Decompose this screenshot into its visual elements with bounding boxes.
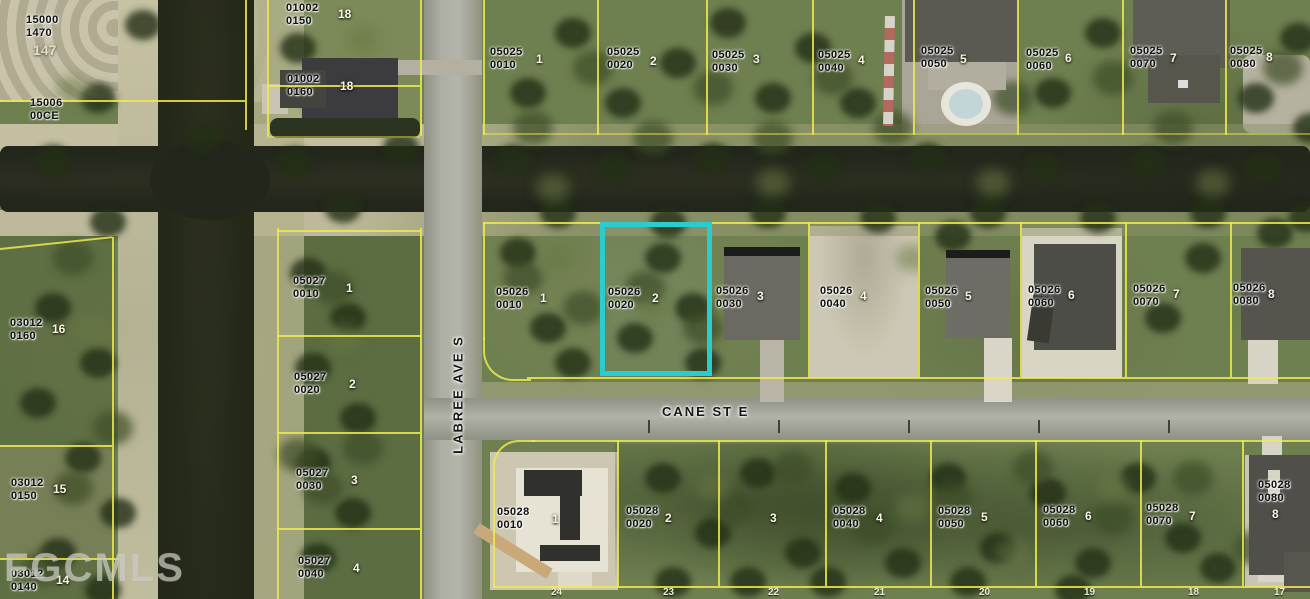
parcel-line: [0, 445, 112, 447]
parcel-line: [617, 440, 619, 586]
parcel-label-05025-0020: 050250020: [607, 46, 640, 72]
lot-number: 1: [540, 291, 547, 305]
adjacent-lot-number: 19: [1084, 587, 1095, 598]
parcel-label-05026-0050: 050260050: [925, 285, 958, 311]
parcel-label-05028-0020: 050280020: [626, 505, 659, 531]
canal-intersection: [150, 140, 270, 220]
adjacent-lot-number: 22: [768, 587, 779, 598]
lot-number: 2: [650, 54, 657, 68]
road-shoulder: [424, 382, 1310, 398]
utility-pole: [648, 420, 650, 433]
parcel-line: [1230, 222, 1232, 377]
parcel-label-05027-0020: 050270020: [294, 371, 327, 397]
street-label-labree: LABREE AVE S: [451, 320, 466, 470]
parcel-line: [277, 335, 420, 337]
parcel-line: [277, 528, 420, 530]
parcel-corner-curve: [483, 338, 531, 381]
parcel-label-03012-0150: 030120150: [11, 477, 44, 503]
parcel-label-05028-0050: 050280050: [938, 505, 971, 531]
parcel-label-05025-0010: 050250010: [490, 46, 523, 72]
lot-number: 1: [536, 52, 543, 66]
parcel-line: [531, 440, 1310, 442]
parcel-label-05025-0040: 050250040: [818, 49, 851, 75]
parcel-line: [1122, 0, 1124, 135]
tower-structure: [883, 16, 895, 126]
lot-number: 8: [1266, 50, 1273, 64]
parcel-label-05028-0060: 050280060: [1043, 504, 1076, 530]
lot-number: 3: [351, 473, 358, 487]
lot-number: 7: [1189, 509, 1196, 523]
lot-number: 18: [340, 79, 353, 93]
parcel-line: [825, 440, 827, 586]
parcel-line: [483, 0, 485, 135]
utility-pole: [1168, 420, 1170, 433]
parcel-line: [1020, 222, 1022, 377]
parcel-line: [112, 237, 114, 599]
parcel-label-05025-0030: 050250030: [712, 49, 745, 75]
parcel-corner-curve: [493, 440, 535, 480]
parcel-label-05027-0040: 050270040: [298, 555, 331, 581]
lot-number: 15: [53, 482, 66, 496]
lot-number: 7: [1170, 51, 1177, 65]
parcel-label-05025-0070: 050250070: [1130, 45, 1163, 71]
parcel-label-05027-0030: 050270030: [296, 467, 329, 493]
parcel-line: [597, 0, 599, 135]
lot-number: 2: [652, 291, 659, 305]
parcel-line: [277, 230, 420, 232]
parcel-line: [706, 0, 708, 135]
lot-number: 5: [960, 52, 967, 66]
adjacent-lot-number: 23: [663, 587, 674, 598]
parcel-label-15006-00CE: 1500600CE: [30, 97, 63, 123]
lot-number: 6: [1085, 509, 1092, 523]
parcel-label-01002-0160: 010020160: [287, 73, 320, 99]
parcel-line: [1242, 440, 1244, 586]
parcel-line: [1225, 0, 1227, 135]
mls-watermark: FGCMLS: [4, 546, 185, 591]
parcel-line: [1125, 222, 1127, 377]
aerial-parcel-photo: 1500014701471500600CE0100201501801002016…: [0, 0, 1310, 599]
lot-number: 4: [353, 561, 360, 575]
parcel-label-05026-0040: 050260040: [820, 285, 853, 311]
tree-canopy-light: [0, 0, 26, 20]
parcel-label-05028-0070: 050280070: [1146, 502, 1179, 528]
parcel-label-05025-0060: 050250060: [1026, 47, 1059, 73]
parcel-line: [420, 228, 422, 599]
parcel-label-05028-0080: 050280080: [1258, 479, 1291, 505]
parcel-label-03012-0160: 030120160: [10, 317, 43, 343]
parcel-line: [808, 222, 810, 377]
utility-pole: [1038, 420, 1040, 433]
lot-number: 4: [860, 289, 867, 303]
adjacent-lot-number: 21: [874, 587, 885, 598]
utility-pole: [778, 420, 780, 433]
street-label-cane: CANE ST E: [662, 404, 749, 419]
lot-number: 2: [349, 377, 356, 391]
framed-walls: [560, 470, 580, 540]
road-labree-ave: [424, 0, 482, 599]
lot-number: 6: [1068, 288, 1075, 302]
adjacent-lot-number: 18: [1188, 587, 1199, 598]
parcel-line: [812, 0, 814, 135]
lot-number: 147: [33, 42, 56, 58]
parcel-label-05025-0050: 050250050: [921, 45, 954, 71]
lot-number: 7: [1173, 287, 1180, 301]
driveway: [984, 338, 1012, 402]
parcel-line: [1035, 440, 1037, 586]
utility-pole: [908, 420, 910, 433]
parcel-label-01002-0150: 010020150: [286, 2, 319, 28]
parcel-line: [267, 0, 269, 136]
parcel-label-05026-0020: 050260020: [608, 286, 641, 312]
lot-number: 3: [757, 289, 764, 303]
parcel-line: [527, 377, 1310, 379]
parcel-line: [483, 222, 485, 340]
adjacent-lot-number: 17: [1274, 587, 1285, 598]
hedge-row: [270, 118, 420, 138]
lot-number: 3: [753, 52, 760, 66]
lot-number: 1: [346, 281, 353, 295]
lot-number: 5: [981, 510, 988, 524]
parcel-label-05025-0080: 050250080: [1230, 45, 1263, 71]
canal-bank: [118, 0, 162, 599]
parcel-label-05028-0040: 050280040: [833, 505, 866, 531]
framed-walls: [540, 545, 600, 561]
parcel-line: [1140, 440, 1142, 586]
lot-number: 8: [1272, 507, 1279, 521]
parcel-line: [493, 476, 495, 586]
lot-number: 4: [876, 511, 883, 525]
parcel-label-05026-0080: 050260080: [1233, 282, 1266, 308]
lot-number: 18: [338, 7, 351, 21]
lot-number: 16: [52, 322, 65, 336]
driveway: [760, 340, 784, 402]
woods-shading: [0, 235, 115, 599]
lot-number: 1: [552, 512, 559, 526]
parcel-label-05026-0060: 050260060: [1028, 284, 1061, 310]
parcel-label-05027-0010: 050270010: [293, 275, 326, 301]
lot-number: 6: [1065, 51, 1072, 65]
adjacent-lot-number: 20: [979, 587, 990, 598]
driveway: [396, 60, 482, 75]
parcel-line: [930, 440, 932, 586]
adjacent-lot-number: 24: [551, 587, 562, 598]
lot-number: 5: [965, 289, 972, 303]
parcel-line: [420, 0, 422, 136]
lot-number: 3: [770, 511, 777, 525]
parcel-line: [1017, 0, 1019, 135]
parcel-line: [483, 133, 1310, 135]
parcel-label-05026-0010: 050260010: [496, 286, 529, 312]
parcel-label-15000-1470: 150001470: [26, 14, 59, 40]
lot-number: 4: [858, 53, 865, 67]
parcel-label-05026-0030: 050260030: [716, 285, 749, 311]
parcel-label-05028-0010: 050280010: [497, 506, 530, 532]
parcel-line: [718, 440, 720, 586]
parcel-label-05026-0070: 050260070: [1133, 283, 1166, 309]
parcel-line: [245, 0, 247, 130]
road-cane-st: [424, 398, 1310, 440]
parcel-line: [277, 228, 279, 599]
parcel-line: [913, 0, 915, 135]
canal-water-vertical: [158, 0, 254, 599]
parcel-line: [267, 136, 420, 138]
ac-pad: [1178, 80, 1188, 88]
parcel-line: [918, 222, 920, 377]
parcel-line: [277, 432, 420, 434]
lot-number: 8: [1268, 287, 1275, 301]
swimming-pool: [949, 89, 983, 119]
lot-number: 2: [665, 511, 672, 525]
